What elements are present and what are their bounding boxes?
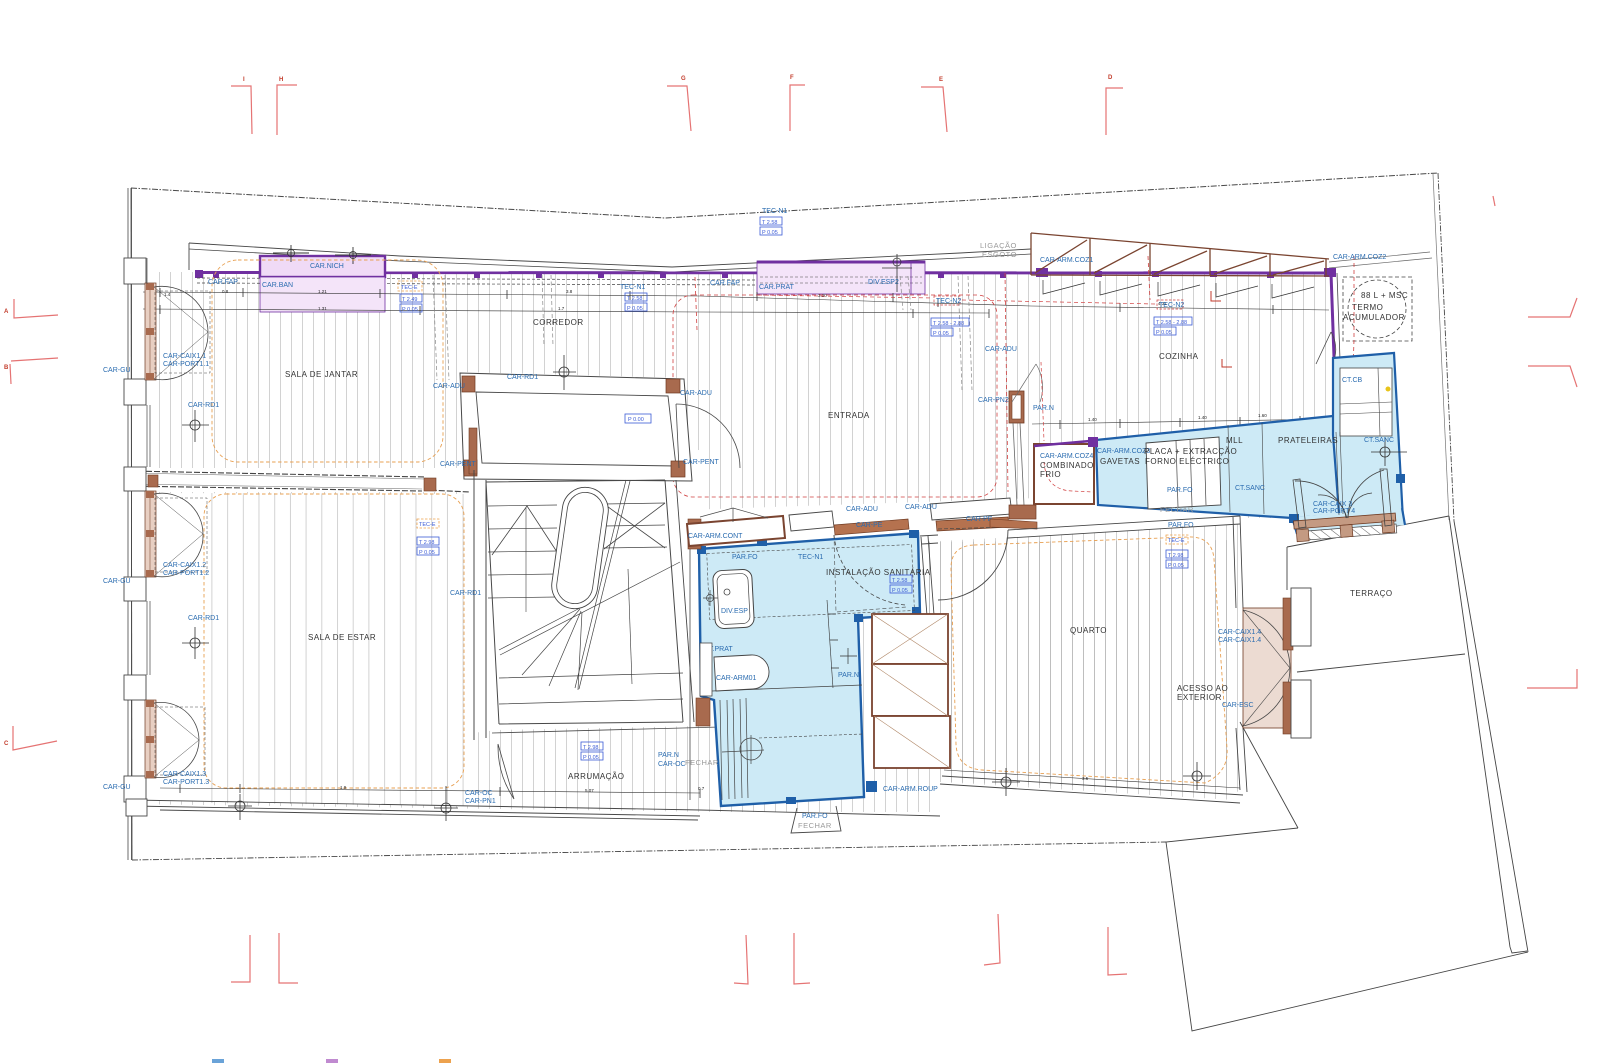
svg-text:CAR-ARM.COZ3: CAR-ARM.COZ3 [1097, 448, 1150, 455]
svg-text:MLL: MLL [1226, 436, 1243, 445]
svg-text:T 2.98: T 2.98 [419, 540, 435, 546]
svg-text:CAR-ARM.CONT: CAR-ARM.CONT [688, 533, 743, 540]
svg-text:PAR.N: PAR.N [1033, 405, 1054, 412]
svg-text:CAR-CAIX1.3: CAR-CAIX1.3 [163, 771, 206, 778]
svg-text:INSTALAÇÃO SANITÁRIA: INSTALAÇÃO SANITÁRIA [826, 568, 931, 577]
svg-text:PLACA + EXTRACÇÃO: PLACA + EXTRACÇÃO [1144, 447, 1237, 456]
svg-text:CAR-RD1: CAR-RD1 [188, 615, 219, 622]
svg-text:T 2.49: T 2.49 [402, 297, 418, 303]
svg-text:PAR.FO: PAR.FO [1167, 487, 1193, 494]
svg-text:88 L + MSC: 88 L + MSC [1361, 291, 1408, 300]
svg-text:CAR-ADU: CAR-ADU [433, 383, 465, 390]
svg-text:COZINHA: COZINHA [1159, 352, 1199, 361]
svg-text:1.9: 1.9 [340, 785, 347, 790]
svg-text:CAR.FAP: CAR.FAP [710, 280, 740, 287]
svg-text:G: G [681, 76, 686, 82]
svg-text:TEC-E: TEC-E [1168, 538, 1185, 544]
svg-text:CAR-RD1: CAR-RD1 [450, 590, 481, 597]
svg-text:A: A [4, 309, 9, 315]
svg-text:3.8: 3.8 [566, 289, 573, 294]
svg-text:CAR-PORT1.3: CAR-PORT1.3 [163, 779, 209, 786]
svg-text:CAR-PENT: CAR-PENT [440, 461, 477, 468]
svg-text:1.31: 1.31 [318, 306, 327, 311]
svg-text:E: E [939, 77, 943, 83]
svg-text:P 0.05: P 0.05 [1168, 563, 1184, 569]
svg-text:C: C [4, 741, 9, 747]
svg-text:CAR-PE: CAR-PE [856, 522, 883, 529]
svg-text:TEC-N1: TEC-N1 [762, 208, 787, 215]
svg-text:5.07: 5.07 [585, 788, 594, 793]
svg-text:T 2.58: T 2.58 [627, 296, 643, 302]
svg-text:FECHAR: FECHAR [1160, 505, 1194, 514]
svg-text:P 0.05: P 0.05 [627, 306, 643, 312]
svg-text:1.7: 1.7 [558, 306, 565, 311]
svg-text:FORNO ELÉCTRICO: FORNO ELÉCTRICO [1145, 457, 1229, 466]
svg-text:CAR-ADU: CAR-ADU [680, 390, 712, 397]
svg-text:B: B [4, 365, 9, 371]
svg-text:CAR-GU: CAR-GU [103, 578, 131, 585]
svg-text:CORREDOR: CORREDOR [533, 318, 584, 327]
svg-text:T 2.58 - 2.88: T 2.58 - 2.88 [1156, 320, 1187, 326]
svg-text:CAR-RD1: CAR-RD1 [507, 374, 538, 381]
svg-text:TERRAÇO: TERRAÇO [1350, 589, 1393, 598]
svg-text:QUARTO: QUARTO [1070, 626, 1107, 635]
svg-text:CAR-GU: CAR-GU [103, 367, 131, 374]
svg-text:1.40: 1.40 [1198, 415, 1207, 420]
svg-text:P 0.05: P 0.05 [583, 755, 599, 761]
svg-text:TEC-N1: TEC-N1 [798, 554, 823, 561]
svg-text:TEC-E: TEC-E [419, 522, 436, 528]
svg-text:CAR.NICH: CAR.NICH [310, 263, 344, 270]
svg-text:CAR-ARM.COZ4: CAR-ARM.COZ4 [1040, 453, 1093, 460]
svg-text:1.21: 1.21 [318, 289, 327, 294]
svg-text:P 0.05: P 0.05 [762, 230, 778, 236]
svg-text:CAR-OC: CAR-OC [465, 790, 493, 797]
svg-text:CAR-OC: CAR-OC [658, 761, 686, 768]
svg-text:CAR-PORT1.1: CAR-PORT1.1 [163, 361, 209, 368]
svg-text:TEC-E: TEC-E [401, 285, 418, 291]
svg-text:CAR.BAN: CAR.BAN [262, 282, 293, 289]
svg-text:P 0.00: P 0.00 [628, 417, 644, 423]
svg-text:P 0.05: P 0.05 [419, 550, 435, 556]
svg-text:P 0.05: P 0.05 [1156, 330, 1172, 336]
svg-text:CAR-PN2: CAR-PN2 [978, 397, 1009, 404]
svg-text:P 0.05: P 0.05 [402, 307, 418, 313]
svg-text:CAR-ADU: CAR-ADU [905, 504, 937, 511]
svg-text:3.20: 3.20 [818, 293, 827, 298]
svg-text:PRATELEIRAS: PRATELEIRAS [1278, 436, 1338, 445]
svg-text:ACESSO AO: ACESSO AO [1177, 684, 1228, 693]
svg-text:EXTERIOR: EXTERIOR [1177, 693, 1222, 702]
svg-text:H: H [279, 77, 283, 83]
svg-text:CAR-CAIX1.1: CAR-CAIX1.1 [163, 353, 206, 360]
svg-text:CAR-PORT 4: CAR-PORT 4 [1313, 508, 1355, 515]
svg-text:CT.SANC: CT.SANC [1364, 437, 1394, 444]
svg-text:CAR-ESC: CAR-ESC [1222, 702, 1254, 709]
svg-text:FECHAR: FECHAR [685, 758, 719, 767]
svg-text:CAR-PE: CAR-PE [966, 516, 993, 523]
svg-text:CAR-ARM01: CAR-ARM01 [716, 675, 757, 682]
svg-text:D: D [1108, 75, 1113, 81]
svg-text:T 2.98: T 2.98 [583, 745, 599, 751]
svg-text:PAR.N: PAR.N [658, 752, 679, 759]
svg-text:ENTRADA: ENTRADA [828, 411, 870, 420]
svg-text:CAR.PRAT: CAR.PRAT [759, 284, 795, 291]
svg-text:FECHAR: FECHAR [798, 821, 832, 830]
svg-text:T 2.58 - 2.88: T 2.58 - 2.88 [933, 321, 964, 327]
svg-text:DIV.ESP: DIV.ESP [721, 608, 748, 615]
svg-text:SALA DE JANTAR: SALA DE JANTAR [285, 370, 358, 379]
svg-text:T 2.98: T 2.98 [1168, 553, 1184, 559]
svg-text:CAR-PENT: CAR-PENT [683, 459, 720, 466]
svg-text:PAR.FO: PAR.FO [802, 813, 828, 820]
svg-text:CAR-ADU: CAR-ADU [846, 506, 878, 513]
svg-text:PAR.FO: PAR.FO [732, 554, 758, 561]
svg-text:ESGOTO: ESGOTO [982, 250, 1017, 259]
svg-text:TEC-N1: TEC-N1 [620, 284, 645, 291]
svg-text:ARRUMAÇÃO: ARRUMAÇÃO [568, 772, 625, 781]
svg-text:ACUMULADOR: ACUMULADOR [1343, 313, 1405, 322]
svg-text:CAR-GU: CAR-GU [103, 784, 131, 791]
svg-text:LIGAÇÃO: LIGAÇÃO [980, 241, 1017, 250]
svg-text:GAVETAS: GAVETAS [1100, 457, 1140, 466]
svg-text:T 2.58: T 2.58 [762, 220, 778, 226]
svg-text:SALA DE ESTAR: SALA DE ESTAR [308, 633, 376, 642]
svg-text:CAR-CAIX1.4: CAR-CAIX1.4 [1218, 637, 1261, 644]
svg-text:CT.CB: CT.CB [1342, 377, 1363, 384]
svg-text:TEC-N2: TEC-N2 [936, 298, 961, 305]
svg-text:1.60: 1.60 [1258, 413, 1267, 418]
svg-text:TEC-N2: TEC-N2 [1159, 302, 1184, 309]
svg-text:CAR-CAIX 3: CAR-CAIX 3 [1313, 501, 1352, 508]
svg-text:F: F [790, 75, 794, 81]
svg-text:CAR.FAP: CAR.FAP [208, 279, 238, 286]
svg-text:COMBINADO: COMBINADO [1040, 461, 1094, 470]
svg-text:T 2.58: T 2.58 [892, 578, 908, 584]
svg-text:CAR-ARM.COZ1: CAR-ARM.COZ1 [1040, 257, 1093, 264]
svg-text:FRIO: FRIO [1040, 470, 1061, 479]
svg-text:CAR-ADU: CAR-ADU [985, 346, 1017, 353]
svg-text:CAR-PORT1.2: CAR-PORT1.2 [163, 570, 209, 577]
svg-text:PAR.N: PAR.N [838, 672, 859, 679]
svg-text:3.5: 3.5 [1082, 776, 1089, 781]
svg-text:CAR-PN1: CAR-PN1 [465, 798, 496, 805]
svg-text:P 0.05: P 0.05 [892, 588, 908, 594]
svg-text:CAR-ARM.COZ2: CAR-ARM.COZ2 [1333, 254, 1386, 261]
svg-text:TERMO: TERMO [1352, 303, 1383, 312]
svg-text:0.7: 0.7 [698, 786, 705, 791]
svg-text:P 0.05: P 0.05 [933, 331, 949, 337]
svg-text:CAR-CAIX1.2: CAR-CAIX1.2 [163, 562, 206, 569]
svg-text:CAR-ARM.ROUP: CAR-ARM.ROUP [883, 786, 938, 793]
svg-text:CAR-RD1: CAR-RD1 [188, 402, 219, 409]
svg-text:CT.SANC: CT.SANC [1235, 485, 1265, 492]
svg-text:0.8: 0.8 [222, 289, 229, 294]
svg-text:1.40: 1.40 [1088, 417, 1097, 422]
svg-text:CAR-CAIX1.4: CAR-CAIX1.4 [1218, 629, 1261, 636]
svg-text:DIV.ESP2: DIV.ESP2 [868, 279, 899, 286]
